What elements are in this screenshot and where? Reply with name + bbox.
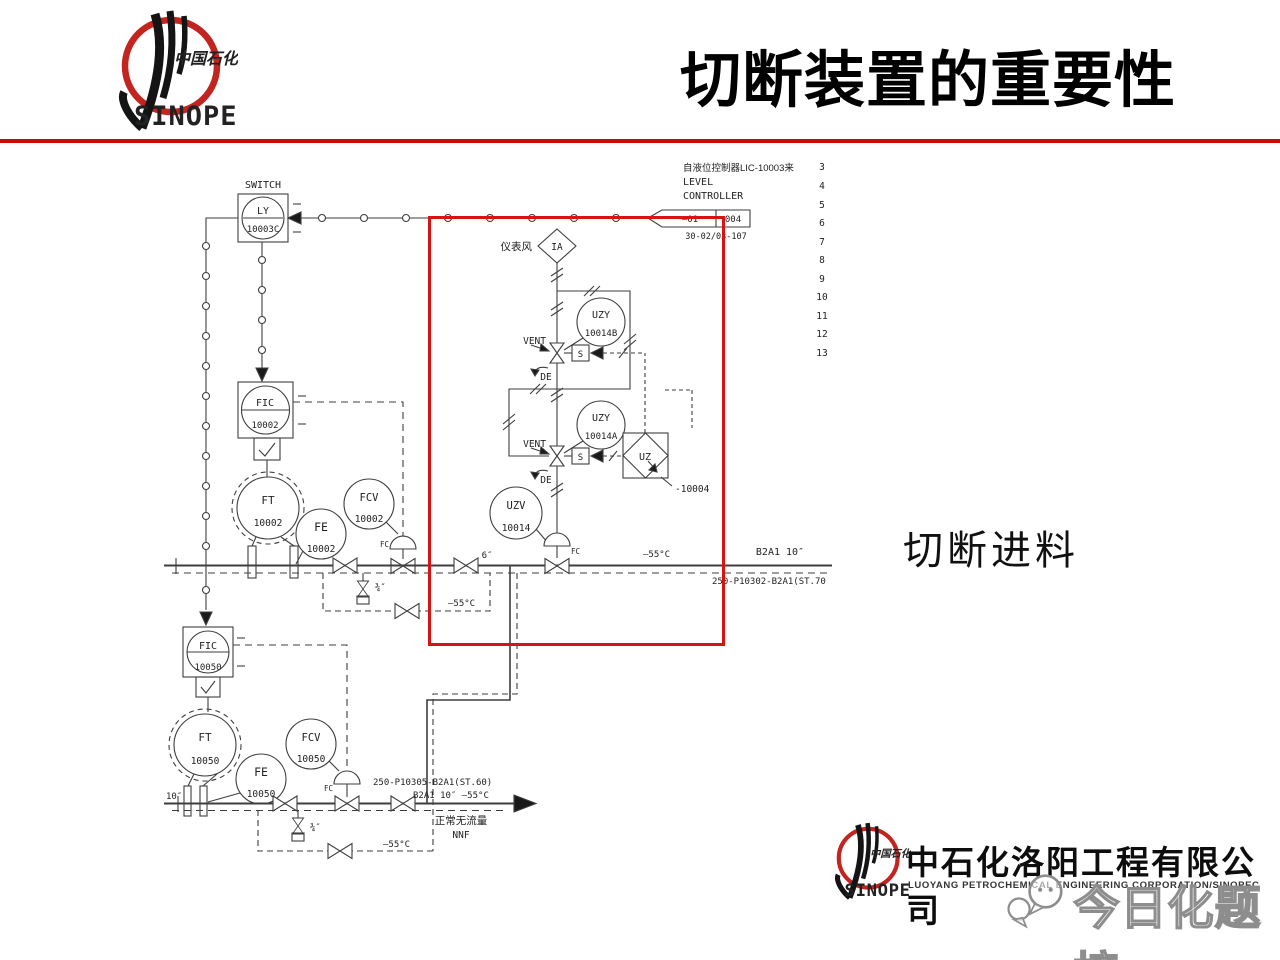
svg-text:8: 8 xyxy=(819,255,825,266)
ft2-tag: FT xyxy=(198,731,212,744)
level-label: LEVEL xyxy=(683,177,713,188)
bypass2-temp: —55°C xyxy=(383,840,410,850)
fic1-tag: FIC xyxy=(256,398,274,409)
highlight-rectangle xyxy=(428,216,725,646)
row-numbers: 3 4 5 6 7 8 9 10 11 12 13 xyxy=(816,162,828,359)
fe2-number: 10050 xyxy=(247,789,276,800)
ly-tag: LY xyxy=(257,206,269,217)
svg-text:4: 4 xyxy=(819,181,825,192)
ft2-number: 10050 xyxy=(191,756,220,767)
svg-text:9: 9 xyxy=(819,274,825,285)
fe1-tag: FE xyxy=(314,520,328,534)
bypass1-size: ¾″ xyxy=(375,583,386,593)
ft-10002-bubble xyxy=(237,477,299,539)
logo-en-text: SINOPEC xyxy=(134,101,238,132)
pipe-line-top: 250-P10302-B2A1(ST.70 xyxy=(712,577,826,587)
svg-text:13: 13 xyxy=(816,348,827,359)
svg-text:5: 5 xyxy=(819,200,825,211)
sinopec-logo: 中国石化 SINOPEC xyxy=(58,8,238,136)
watermark-text: 今日化题榜 xyxy=(1074,872,1280,960)
pennant-text-b: 004 xyxy=(725,215,741,225)
fcv1-number: 10002 xyxy=(355,514,384,525)
footer-logo-en-text: SINOPEC xyxy=(845,881,911,901)
fcv2-number: 10050 xyxy=(297,754,326,765)
fcv1-tag: FCV xyxy=(360,492,380,504)
logo-stripe xyxy=(163,11,172,98)
switch-label: SWITCH xyxy=(245,180,281,191)
cut-feed-annotation: 切断进料 xyxy=(903,518,1079,576)
pipe-class-top: B2A1 10″ xyxy=(756,547,804,558)
ft1-number: 10002 xyxy=(254,518,283,529)
svg-text:10: 10 xyxy=(816,292,828,303)
bypass2-size: ¾″ xyxy=(310,823,321,833)
fic2-tag: FIC xyxy=(199,641,217,652)
svg-text:6: 6 xyxy=(819,218,825,229)
pipe-line-bottom: 250-P10305-B2A1(ST.60) xyxy=(373,778,492,788)
fcv-10002-actuator xyxy=(390,536,416,549)
page-title: 切断装置的重要性 xyxy=(648,30,1208,119)
nnf-label: NNF xyxy=(452,830,469,841)
controller-label: CONTROLLER xyxy=(683,191,744,202)
svg-text:12: 12 xyxy=(816,329,827,340)
fic2-number: 10050 xyxy=(194,663,221,673)
flow-arrow xyxy=(514,795,536,812)
fcv-10050-actuator xyxy=(334,771,360,784)
pipe-size-10: 10″ xyxy=(166,792,182,802)
from-lic-note: 自液位控制器LIC-10003来 xyxy=(683,162,794,174)
fcv2-fc-label: FC xyxy=(324,784,333,793)
slide: 中国石化 SINOPEC 切断装置的重要性 xyxy=(0,0,1280,960)
fe2-tag: FE xyxy=(254,765,268,779)
chat-bubbles-icon xyxy=(1005,862,1074,942)
svg-text:11: 11 xyxy=(816,311,828,322)
watermark: 今日化题榜 xyxy=(1005,862,1280,960)
header-divider xyxy=(0,139,1280,143)
nnf-cn-label: 正常无流量 xyxy=(435,814,488,827)
footer-logo-cn-text: 中国石化 xyxy=(870,848,911,860)
logo-cn-text: 中国石化 xyxy=(174,50,238,68)
fcv1-fc-label: FC xyxy=(380,540,389,549)
ft1-tag: FT xyxy=(261,494,275,507)
fic1-number: 10002 xyxy=(251,421,278,431)
ly-number: 10003C xyxy=(247,225,280,235)
checkmark xyxy=(259,443,275,456)
fcv2-tag: FCV xyxy=(302,732,322,744)
svg-text:3: 3 xyxy=(819,162,825,173)
signal-arrowhead xyxy=(288,212,301,224)
svg-text:7: 7 xyxy=(819,237,825,248)
footer-sinopec-logo: 中国石化 SINOPEC xyxy=(796,818,911,906)
fe1-number: 10002 xyxy=(307,544,336,555)
pipe-class-bottom: B2A1 10″ —55°C xyxy=(413,791,489,801)
